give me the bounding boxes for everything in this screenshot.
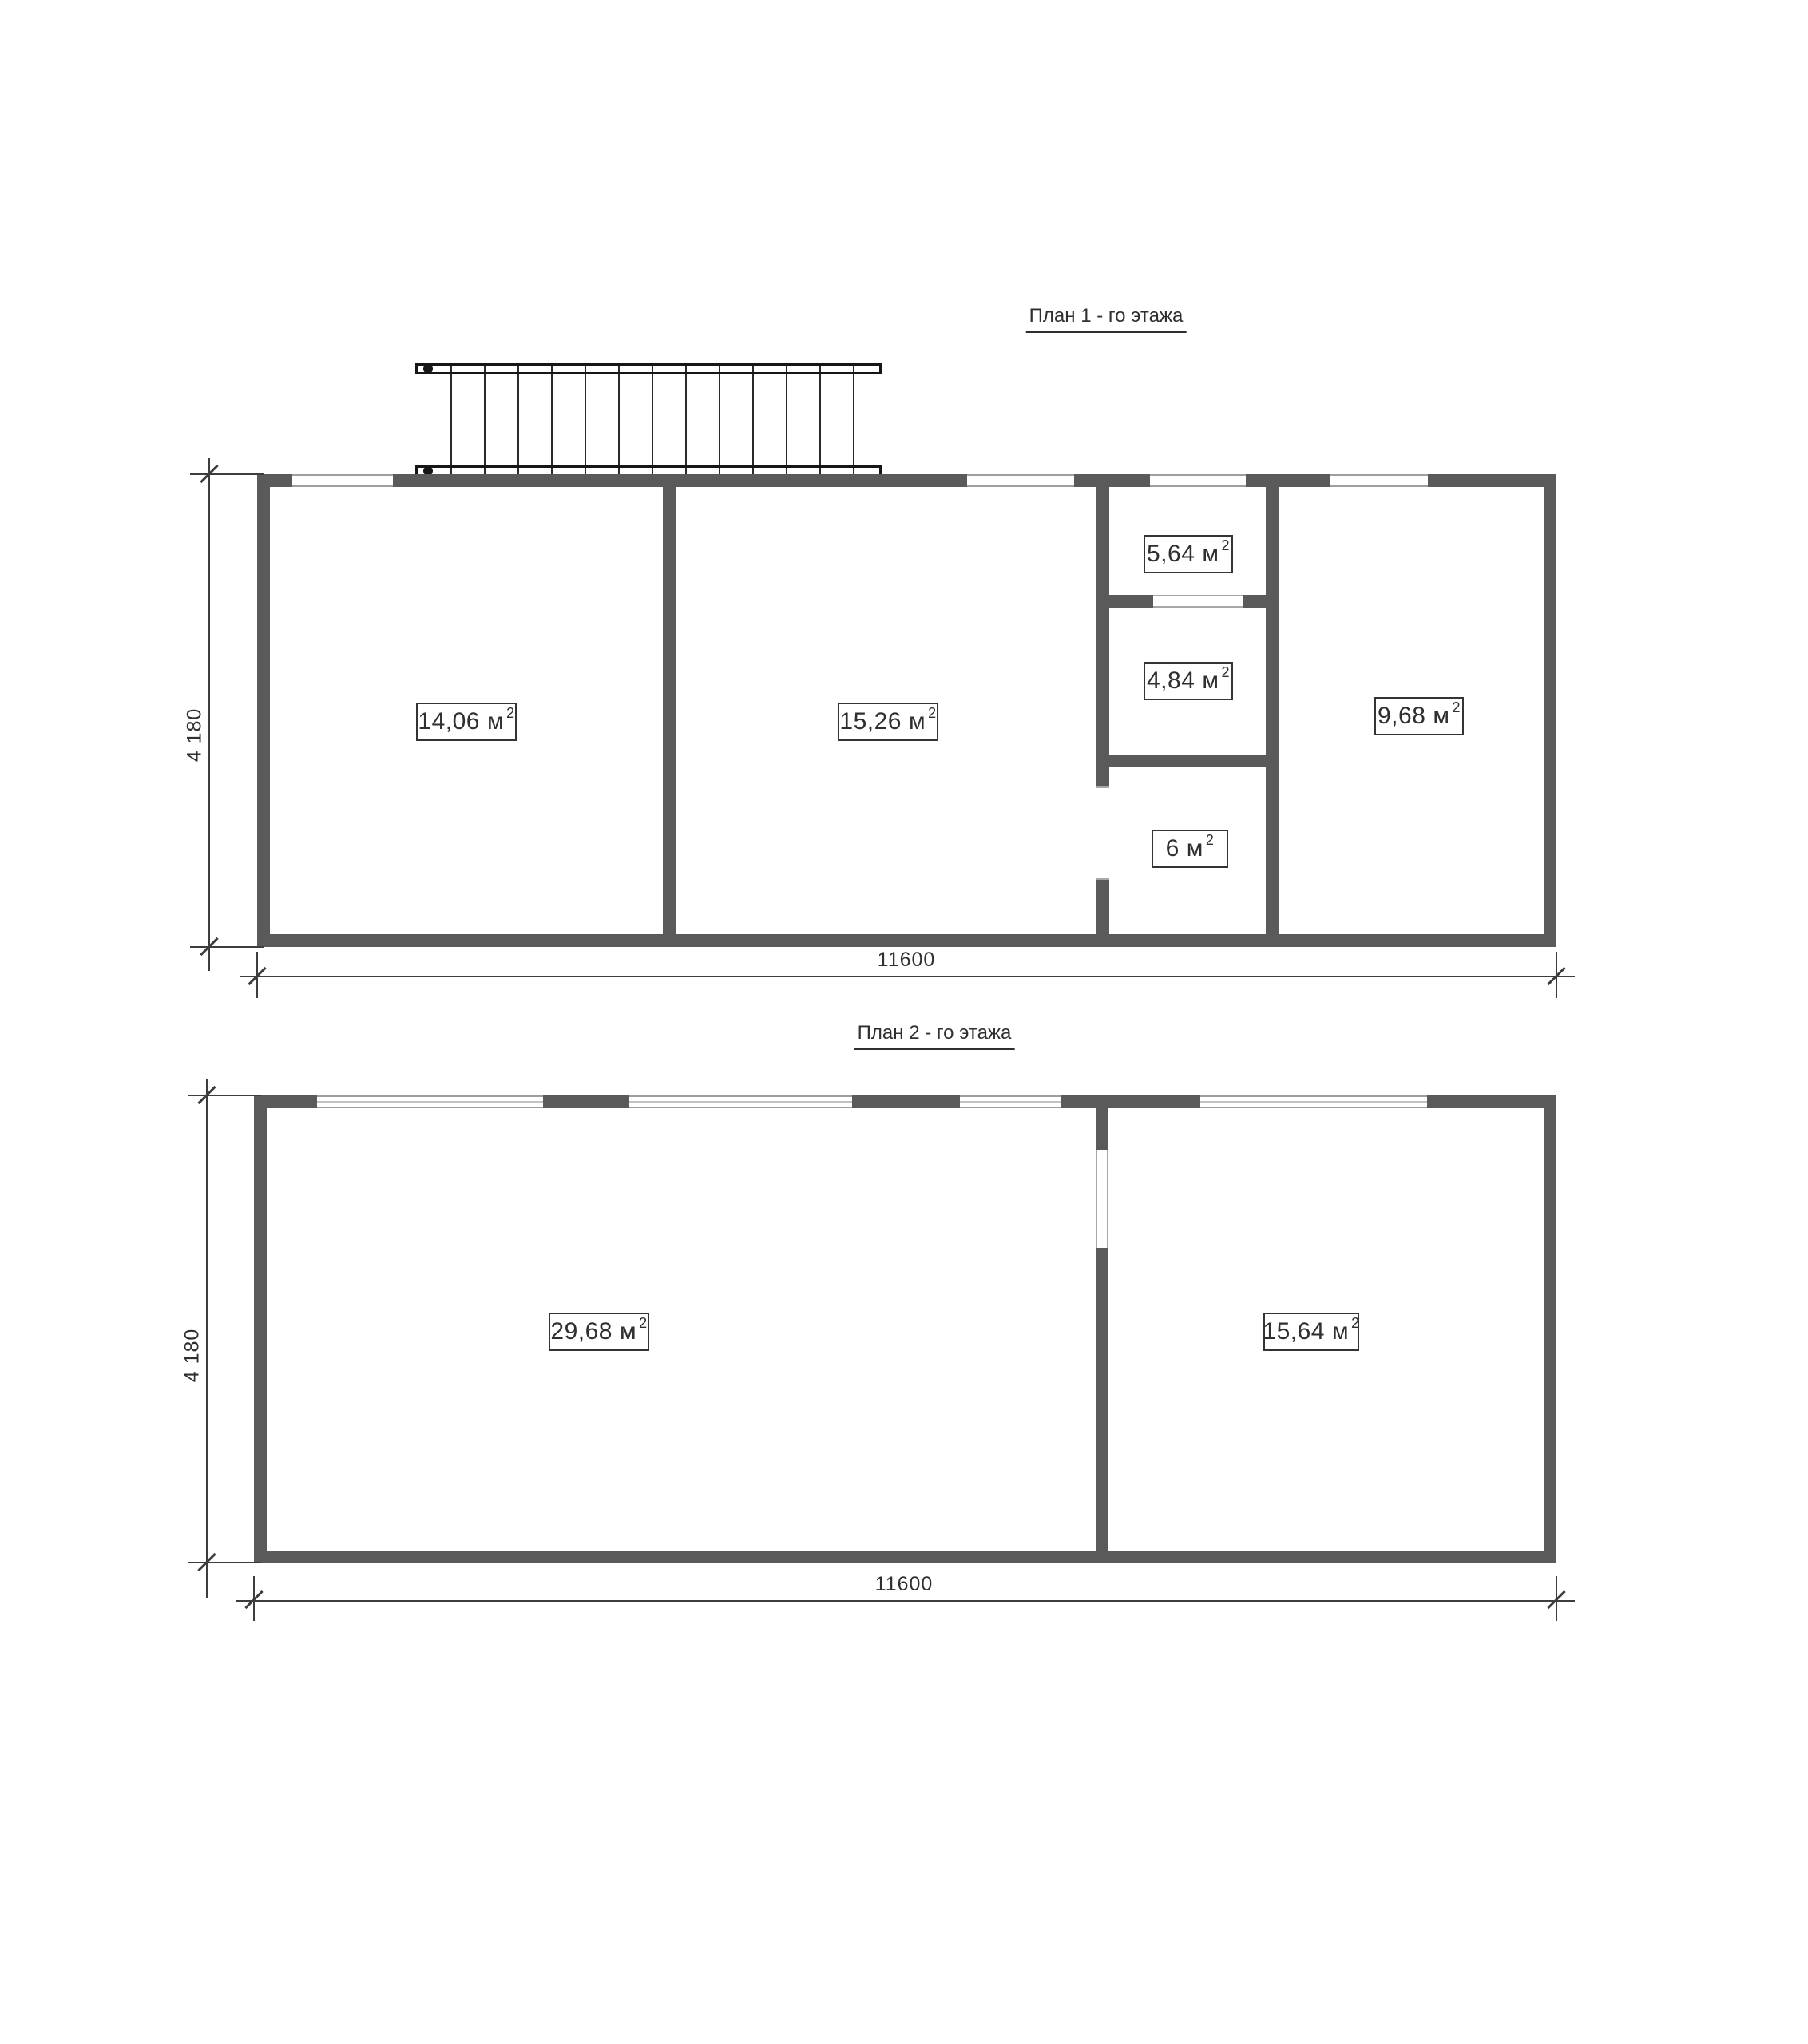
door-opening-jamb — [1153, 595, 1243, 596]
room-area-label: 5,64м2 — [1144, 535, 1233, 573]
window-mullion-line — [960, 1101, 1061, 1103]
stair-tread — [484, 363, 486, 477]
dim-extension — [188, 1095, 261, 1096]
room-area-unit: м — [1202, 541, 1219, 568]
room-area-unit: м — [620, 1318, 636, 1345]
stair-tread — [517, 363, 519, 477]
stair-tread — [719, 363, 720, 477]
dim-line-vertical — [206, 1079, 208, 1598]
stair-tread — [819, 363, 821, 477]
dim-extension — [190, 946, 264, 948]
room-area-value: 4,84 — [1147, 667, 1195, 695]
plan1-title: План 1 - го этажа — [1026, 305, 1187, 333]
room-area-label: 29,68м2 — [549, 1313, 649, 1351]
room-area-value: 14,06 — [418, 708, 480, 735]
stair-tread — [652, 363, 653, 477]
interior-wall — [1109, 755, 1266, 767]
dim-line-horizontal — [240, 976, 1575, 977]
dim-extension — [1556, 952, 1557, 998]
exterior-wall-top — [1074, 474, 1150, 487]
room-area-label: 14,06м2 — [416, 703, 517, 741]
door-opening-jamb — [1107, 1150, 1108, 1248]
interior-wall — [1096, 880, 1109, 934]
dim-extension — [190, 473, 264, 475]
room-area-value: 15,26 — [839, 708, 902, 735]
room-area-unit: м — [487, 708, 504, 735]
exterior-wall-top — [1427, 1095, 1556, 1108]
door-opening-jamb — [1096, 878, 1109, 880]
room-area-exponent: 2 — [639, 1315, 648, 1332]
room-area-exponent: 2 — [928, 705, 937, 722]
interior-wall — [1096, 1248, 1108, 1551]
room-area-label: 15,64м2 — [1263, 1313, 1359, 1351]
room-area-value: 5,64 — [1147, 541, 1195, 568]
stair-tread — [853, 363, 854, 477]
interior-wall — [1243, 595, 1266, 608]
room-area-exponent: 2 — [1351, 1315, 1360, 1332]
dim-extension — [256, 952, 258, 998]
stair-tread — [618, 363, 620, 477]
room-area-value: 15,64 — [1263, 1318, 1325, 1345]
stair-tread — [752, 363, 754, 477]
room-area-exponent: 2 — [1222, 664, 1231, 681]
exterior-wall-left — [257, 474, 270, 947]
room-area-exponent: 2 — [1206, 832, 1215, 849]
window-opening — [967, 474, 1074, 487]
door-opening-jamb — [1153, 606, 1243, 608]
room-area-label: 4,84м2 — [1144, 662, 1233, 700]
plan1-height-dimension: 4 180 — [184, 671, 207, 799]
room-area-label: 6м2 — [1152, 830, 1228, 868]
interior-wall — [1266, 487, 1279, 934]
window-opening — [317, 1095, 543, 1108]
exterior-wall-bottom — [254, 1551, 1556, 1563]
room-area-value: 29,68 — [550, 1318, 613, 1345]
window-mullion-line — [317, 1101, 543, 1103]
stair-tread — [551, 363, 553, 477]
interior-wall — [1096, 487, 1109, 788]
room-area-value: 6 — [1166, 835, 1180, 862]
window-mullion-line — [1200, 1101, 1427, 1103]
room-area-unit: м — [1187, 835, 1203, 862]
window-opening — [960, 1095, 1061, 1108]
window-opening — [292, 474, 393, 487]
exterior-wall-top — [1061, 1095, 1200, 1108]
dim-extension — [1556, 1576, 1557, 1621]
room-area-exponent: 2 — [506, 705, 515, 722]
window-opening — [629, 1095, 852, 1108]
room-area-label: 9,68м2 — [1374, 697, 1464, 735]
plan2-title: План 2 - го этажа — [854, 1022, 1015, 1050]
door-opening-jamb — [1096, 1150, 1097, 1248]
dim-extension — [188, 1562, 261, 1563]
exterior-wall-top — [852, 1095, 960, 1108]
exterior-wall-right — [1544, 1095, 1556, 1563]
stair-tread — [786, 363, 787, 477]
interior-wall — [1096, 1108, 1108, 1150]
exterior-wall-top — [543, 1095, 629, 1108]
exterior-wall-right — [1544, 474, 1556, 947]
dim-extension — [253, 1576, 255, 1621]
window-mullion-line — [629, 1101, 852, 1103]
stair-post-dot-icon — [423, 364, 433, 374]
stair-tread — [585, 363, 586, 477]
door-opening-jamb — [1096, 786, 1109, 788]
plan2-width-dimension: 11600 — [840, 1573, 968, 1596]
exterior-wall-top — [1246, 474, 1330, 487]
room-area-unit: м — [1433, 703, 1449, 730]
room-area-value: 9,68 — [1378, 703, 1425, 730]
room-area-unit: м — [1332, 1318, 1349, 1345]
dim-line-horizontal — [236, 1600, 1575, 1602]
exterior-wall-top — [393, 474, 967, 487]
window-opening — [1200, 1095, 1427, 1108]
plan2-height-dimension: 4 180 — [181, 1292, 204, 1420]
window-opening — [1150, 474, 1246, 487]
room-area-unit: м — [909, 708, 926, 735]
room-area-exponent: 2 — [1222, 537, 1231, 554]
stair-tread — [450, 363, 452, 477]
window-opening — [1330, 474, 1428, 487]
room-area-label: 15,26м2 — [838, 703, 938, 741]
plan1-width-dimension: 11600 — [843, 949, 970, 972]
exterior-wall-bottom — [257, 934, 1556, 947]
exterior-wall-left — [254, 1095, 267, 1563]
interior-wall — [1109, 595, 1153, 608]
blueprint-canvas: План 1 - го этажа — [0, 0, 1808, 2044]
stair-tread — [685, 363, 687, 477]
interior-wall — [663, 487, 676, 934]
exterior-wall-top — [1428, 474, 1556, 487]
room-area-exponent: 2 — [1453, 699, 1461, 716]
room-area-unit: м — [1202, 667, 1219, 695]
dim-line-vertical — [208, 458, 210, 971]
stair-rail-top — [415, 363, 882, 374]
